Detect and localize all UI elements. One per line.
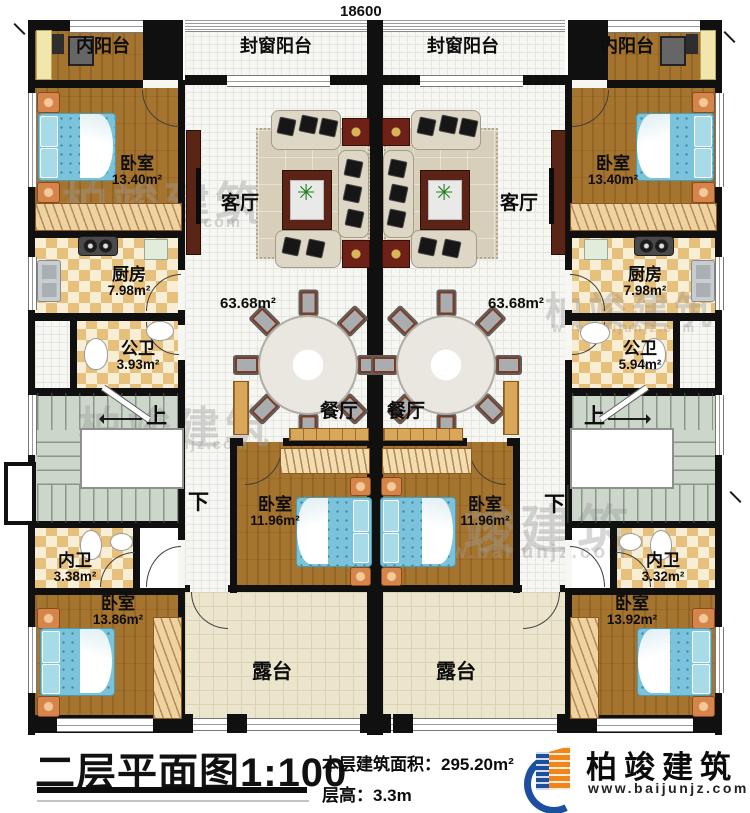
- sideboard: [289, 428, 369, 441]
- stair-flight: [567, 485, 713, 523]
- sofa-cushion: [343, 158, 363, 178]
- stair-down-label: 下: [188, 486, 209, 516]
- wall: [143, 20, 183, 82]
- sofa-cushion: [458, 117, 478, 137]
- window: [715, 257, 724, 310]
- nightstand: [350, 567, 371, 586]
- floor-plan-page: 18600 18400 柏竣建筑 www.baijunjz.com 柏竣建筑 w…: [0, 0, 750, 813]
- room-label-sealed-balcony-right: 封窗阳台: [427, 37, 499, 56]
- nightstand: [692, 182, 715, 203]
- sofa-cushion: [318, 117, 338, 137]
- wall: [70, 318, 77, 390]
- stair-flight: [37, 430, 82, 485]
- sofa-cushion: [298, 114, 318, 134]
- sofa-cushion: [305, 238, 325, 258]
- floor-height-text: 层高：3.3m: [322, 781, 412, 806]
- door-opening: [143, 80, 178, 88]
- room-label-dining-right: 餐厅: [387, 402, 425, 423]
- wall: [35, 313, 182, 321]
- room-label-terrace-right: 露台: [436, 662, 476, 684]
- window: [608, 20, 700, 33]
- pillow: [40, 148, 58, 178]
- window: [715, 395, 724, 455]
- room-area: 13.40m²: [100, 173, 174, 188]
- wall: [383, 585, 522, 592]
- wardrobe: [153, 617, 182, 719]
- window: [70, 20, 143, 33]
- room-area: 3.93m²: [101, 358, 175, 373]
- basin: [619, 533, 642, 551]
- room-area: 13.92m²: [592, 613, 672, 628]
- basin: [110, 533, 133, 551]
- room-label-bedroom-bottom-left: 卧室 13.86m²: [78, 595, 158, 628]
- nightstand: [692, 608, 715, 629]
- room-area: 11.96m²: [238, 514, 312, 529]
- pillow: [383, 500, 399, 532]
- room-label-public-bath-left: 公卫 3.93m²: [101, 340, 175, 373]
- wall: [568, 313, 715, 321]
- tv: [196, 168, 201, 224]
- title-underline: [37, 787, 307, 793]
- balcony-appliance: [52, 34, 64, 54]
- room-name: 公卫: [101, 340, 175, 358]
- wall: [330, 75, 368, 85]
- room-name: 公卫: [603, 340, 677, 358]
- side-table: [342, 240, 370, 268]
- chair: [495, 355, 522, 375]
- living-area-right: 63.68m²: [488, 296, 544, 312]
- room-label-ensuite-right: 内卫 3.32m²: [626, 552, 700, 585]
- railing-post: [227, 714, 247, 733]
- room-name: 卧室: [448, 496, 522, 514]
- dimension-tick: [723, 31, 735, 43]
- pillow: [353, 533, 369, 563]
- pillow: [692, 664, 710, 694]
- logo-building-icon: [548, 746, 570, 790]
- balcony-appliance: [660, 36, 686, 66]
- wall-recess: [4, 462, 36, 525]
- window: [28, 93, 37, 187]
- sofa-cushion: [441, 238, 461, 258]
- kitchen-sink: [37, 260, 61, 302]
- stair-void: [80, 428, 184, 489]
- chair: [371, 355, 398, 375]
- room-label-bedroom-middle-right: 卧室 11.96m²: [448, 496, 522, 529]
- stair-up-label: 上: [146, 400, 167, 430]
- pillow: [42, 631, 60, 663]
- stair-arrow: [104, 418, 142, 420]
- side-table: [382, 240, 410, 268]
- window: [715, 627, 724, 693]
- wall: [228, 585, 368, 592]
- pillow: [694, 148, 712, 178]
- stair-flight: [668, 430, 715, 485]
- dimension-tick: [729, 491, 741, 503]
- door-opening: [572, 80, 607, 88]
- terrace-railing: [185, 718, 368, 731]
- bed-blanket: [638, 629, 670, 693]
- fridge: [144, 239, 168, 260]
- room-area: 7.98m²: [608, 284, 682, 299]
- sofa-cushion: [386, 208, 406, 228]
- pillow: [42, 664, 60, 694]
- room-name: 卧室: [100, 155, 174, 173]
- room-label-inner-balcony-right: 内阳台: [600, 37, 654, 56]
- room-name: 卧室: [576, 155, 650, 173]
- room-label-terrace-left: 露台: [252, 662, 292, 684]
- pillow: [383, 533, 399, 563]
- room-label-public-bath-right: 公卫 5.94m²: [603, 340, 677, 373]
- dimension-tick: [13, 23, 25, 35]
- dining-set: [396, 315, 492, 411]
- plant-icon: ✳: [297, 180, 315, 206]
- chair: [436, 290, 456, 317]
- hall-cabinet: [503, 381, 519, 435]
- wall: [230, 438, 237, 593]
- nightstand: [692, 696, 715, 717]
- sideboard: [383, 428, 463, 441]
- sofa-cushion: [388, 183, 408, 203]
- room-area: 3.38m²: [38, 570, 112, 585]
- stair-void: [570, 428, 674, 489]
- sofa-cushion: [344, 208, 364, 228]
- pillow: [353, 500, 369, 532]
- chair: [298, 290, 318, 317]
- basin: [146, 321, 174, 341]
- room-area: 11.96m²: [448, 514, 522, 529]
- living-area-left: 63.68m²: [220, 296, 276, 312]
- balcony-cabinet: [36, 30, 52, 80]
- wardrobe: [35, 203, 182, 231]
- stair-flight: [37, 485, 183, 523]
- chair: [233, 355, 260, 375]
- room-label-bedroom-top-left: 卧室 13.40m²: [100, 155, 174, 188]
- window: [57, 718, 153, 732]
- balcony-cabinet: [700, 30, 716, 80]
- nightstand: [37, 92, 60, 113]
- room-label-bedroom-middle-left: 卧室 11.96m²: [238, 496, 312, 529]
- lobby-left-floor: [35, 318, 75, 390]
- railing-post: [557, 714, 565, 733]
- room-name: 卧室: [238, 496, 312, 514]
- door-arc: [146, 546, 181, 587]
- sofa-cushion: [417, 236, 437, 256]
- dining-set: [258, 315, 354, 411]
- fridge: [584, 239, 608, 260]
- room-area: 3.32m²: [626, 570, 700, 585]
- dimension-top: 18600: [340, 3, 382, 20]
- window: [420, 75, 523, 87]
- sofa-cushion: [416, 116, 436, 136]
- room-area: 5.94m²: [603, 358, 677, 373]
- window: [715, 93, 724, 187]
- kitchen-sink: [691, 260, 715, 302]
- nightstand: [37, 182, 60, 203]
- door-opening: [178, 325, 185, 360]
- window: [28, 395, 37, 455]
- stair-down-label: 下: [544, 488, 565, 518]
- pillow: [40, 116, 58, 147]
- sofa-cushion: [281, 236, 301, 256]
- room-name: 内卫: [38, 552, 112, 570]
- room-name: 卧室: [592, 595, 672, 613]
- room-area: 7.98m²: [92, 284, 166, 299]
- window: [597, 718, 693, 732]
- wardrobe: [570, 617, 599, 719]
- wardrobe: [570, 203, 717, 231]
- room-name: 厨房: [608, 266, 682, 284]
- hall-cabinet: [233, 381, 249, 435]
- stair-arrow-head: [646, 414, 656, 424]
- wall: [383, 75, 421, 85]
- sofa-cushion: [387, 158, 407, 178]
- room-label-living-left: 客厅: [221, 194, 259, 215]
- side-table: [342, 118, 370, 146]
- room-label-bedroom-top-right: 卧室 13.40m²: [576, 155, 650, 188]
- nightstand: [350, 477, 371, 496]
- room-label-living-right: 客厅: [500, 194, 538, 215]
- side-table: [382, 118, 410, 146]
- wall: [523, 75, 568, 85]
- window: [185, 20, 367, 32]
- window: [28, 627, 37, 693]
- nightstand: [692, 92, 715, 113]
- sofa-cushion: [276, 116, 296, 136]
- pillow: [692, 631, 710, 663]
- balcony-appliance: [686, 34, 698, 54]
- wall: [185, 585, 190, 592]
- railing-post: [383, 714, 391, 733]
- window: [28, 257, 37, 310]
- room-label-kitchen-right: 厨房 7.98m²: [608, 266, 682, 299]
- wardrobe: [280, 448, 370, 474]
- tv: [549, 168, 554, 224]
- stair-arrow-head: [94, 414, 104, 424]
- title-underline-light: [37, 800, 309, 802]
- sofa-cushion: [438, 114, 458, 134]
- room-name: 内卫: [626, 552, 700, 570]
- pillow: [694, 116, 712, 147]
- wall: [185, 75, 227, 85]
- logo: 柏竣建筑 www.baijunjz.com: [520, 738, 730, 808]
- stove: [634, 236, 674, 256]
- dining-table: [258, 315, 358, 415]
- railing-post: [393, 714, 413, 733]
- room-name: 卧室: [78, 595, 158, 613]
- dining-table: [396, 315, 496, 415]
- room-name: 厨房: [92, 266, 166, 284]
- room-area: 13.40m²: [576, 173, 650, 188]
- room-area: 13.86m²: [78, 613, 158, 628]
- sofa-cushion: [342, 183, 362, 203]
- window: [383, 20, 565, 32]
- stair-up-label: 上: [584, 400, 605, 430]
- plant-icon: ✳: [435, 180, 453, 206]
- floor-area-text: 本层建筑面积：295.20m²: [322, 750, 514, 775]
- stove: [78, 236, 118, 256]
- stair-arrow: [608, 418, 646, 420]
- room-label-dining-left: 餐厅: [320, 402, 358, 423]
- nightstand: [37, 608, 60, 629]
- wardrobe: [382, 448, 472, 474]
- railing-post: [185, 714, 193, 733]
- room-label-sealed-balcony-left: 封窗阳台: [240, 37, 312, 56]
- room-label-bedroom-bottom-right: 卧室 13.92m²: [592, 595, 672, 628]
- logo-website: www.baijunjz.com: [588, 780, 749, 796]
- room-label-kitchen-left: 厨房 7.98m²: [92, 266, 166, 299]
- room-label-ensuite-left: 内卫 3.38m²: [38, 552, 112, 585]
- logo-building-icon: [536, 752, 549, 790]
- nightstand: [381, 567, 402, 586]
- door-opening: [565, 325, 572, 360]
- bed-blanket: [80, 629, 112, 693]
- nightstand: [37, 696, 60, 717]
- window: [227, 75, 330, 87]
- nightstand: [381, 477, 402, 496]
- room-label-inner-balcony-left: 内阳台: [76, 37, 130, 56]
